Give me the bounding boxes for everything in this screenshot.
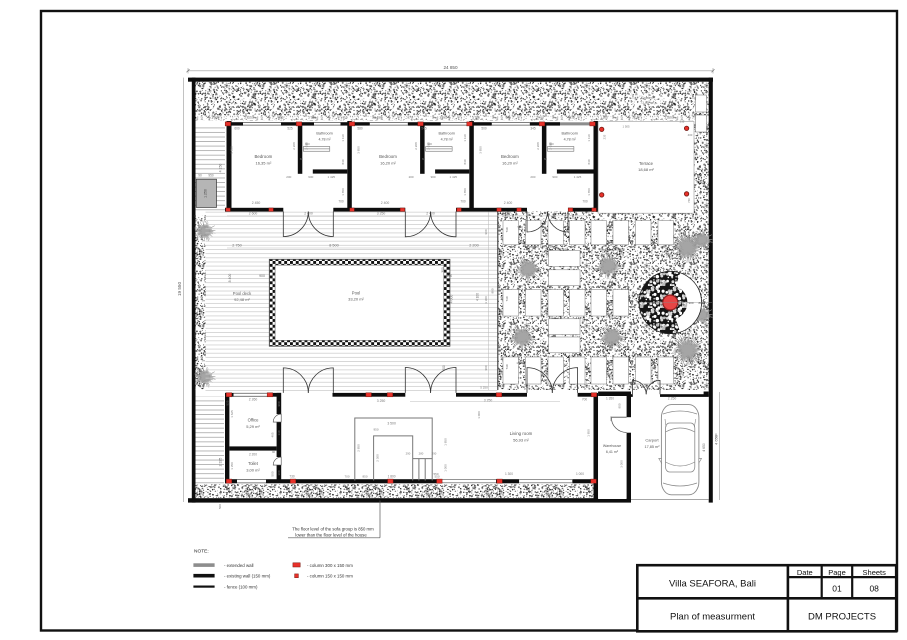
svg-text:92,48 m²: 92,48 m²	[234, 297, 250, 302]
svg-text:500: 500	[218, 504, 222, 509]
svg-text:200: 200	[409, 175, 414, 179]
svg-text:4 650: 4 650	[702, 443, 706, 452]
svg-text:DM PROJECTS: DM PROJECTS	[808, 612, 876, 623]
svg-text:2 750: 2 750	[232, 243, 242, 247]
svg-text:550: 550	[433, 472, 438, 476]
svg-text:3 850: 3 850	[356, 146, 360, 154]
svg-text:3 250: 3 250	[377, 212, 386, 216]
svg-text:- column 150 x 150 mm: - column 150 x 150 mm	[307, 574, 353, 579]
svg-text:545: 545	[421, 127, 427, 131]
svg-text:Villa SEAFORA, Bali: Villa SEAFORA, Bali	[669, 579, 756, 590]
svg-text:840: 840	[341, 159, 345, 164]
svg-text:280: 280	[419, 451, 424, 455]
svg-text:4 100: 4 100	[476, 293, 480, 301]
svg-text:- existing wall (150 mm): - existing wall (150 mm)	[224, 574, 271, 579]
svg-text:1 350: 1 350	[230, 462, 234, 470]
svg-text:16,20 m²: 16,20 m²	[502, 161, 518, 166]
svg-text:01: 01	[832, 584, 842, 594]
svg-text:60: 60	[300, 157, 304, 161]
svg-text:Bedroom: Bedroom	[254, 154, 272, 159]
svg-text:- fence (100 mm): - fence (100 mm)	[224, 585, 258, 590]
svg-text:1 350: 1 350	[664, 116, 672, 120]
svg-text:1 350: 1 350	[606, 396, 614, 400]
svg-text:4,78 m²: 4,78 m²	[441, 138, 454, 142]
svg-text:60: 60	[422, 157, 426, 161]
svg-text:700: 700	[582, 398, 588, 402]
svg-text:905: 905	[505, 116, 510, 120]
svg-text:1 110: 1 110	[341, 134, 345, 142]
svg-text:1 300: 1 300	[505, 472, 513, 476]
svg-text:- column 300 x 150 mm: - column 300 x 150 mm	[307, 563, 353, 568]
svg-text:1 100: 1 100	[516, 361, 524, 365]
svg-text:400: 400	[688, 133, 693, 137]
svg-text:Plant pot 130 x 130: Plant pot 130 x 130	[527, 245, 553, 249]
svg-text:730: 730	[505, 364, 509, 369]
svg-text:300: 300	[277, 470, 281, 475]
svg-text:100: 100	[447, 274, 453, 278]
svg-text:905: 905	[278, 116, 283, 120]
svg-text:1 295: 1 295	[439, 116, 447, 120]
svg-text:900: 900	[688, 301, 693, 305]
svg-text:1 000: 1 000	[443, 464, 447, 472]
svg-text:235: 235	[603, 134, 607, 139]
svg-text:250: 250	[660, 245, 665, 249]
svg-text:1 650: 1 650	[587, 188, 591, 196]
svg-text:1 000: 1 000	[576, 472, 584, 476]
svg-text:500: 500	[481, 127, 487, 131]
svg-text:3 300: 3 300	[484, 296, 488, 304]
svg-text:24 850: 24 850	[443, 65, 457, 70]
svg-text:700: 700	[582, 200, 588, 204]
svg-text:1 800: 1 800	[388, 474, 396, 478]
svg-text:5,29 m²: 5,29 m²	[246, 424, 260, 429]
svg-text:600: 600	[234, 127, 240, 131]
svg-text:900: 900	[484, 229, 488, 234]
svg-text:910: 910	[633, 116, 638, 120]
svg-text:1 505: 1 505	[600, 116, 608, 120]
svg-text:900: 900	[491, 288, 495, 293]
svg-text:700: 700	[582, 252, 586, 258]
svg-text:1 650: 1 650	[341, 188, 345, 196]
svg-text:2 208: 2 208	[292, 142, 296, 150]
svg-text:700: 700	[344, 474, 349, 478]
svg-text:- extended wall: - extended wall	[224, 563, 254, 568]
svg-text:4 150: 4 150	[219, 164, 223, 173]
svg-text:4,78 m²: 4,78 m²	[564, 138, 577, 142]
svg-text:2 208: 2 208	[536, 142, 540, 150]
svg-text:950: 950	[208, 174, 214, 178]
svg-text:19 550: 19 550	[177, 282, 182, 296]
svg-text:16,35 m²: 16,35 m²	[256, 161, 272, 166]
svg-text:300: 300	[441, 267, 445, 273]
svg-text:290: 290	[432, 451, 437, 455]
svg-text:2 260: 2 260	[249, 398, 258, 402]
svg-text:Bathroom: Bathroom	[561, 132, 577, 136]
svg-text:18,68 m²: 18,68 m²	[638, 167, 654, 172]
svg-text:465: 465	[271, 432, 275, 437]
svg-text:2 600: 2 600	[249, 212, 258, 216]
svg-text:700: 700	[338, 200, 344, 204]
svg-text:500: 500	[271, 471, 275, 476]
svg-text:900: 900	[517, 225, 522, 229]
svg-text:900: 900	[277, 401, 281, 406]
svg-text:1 000: 1 000	[477, 411, 481, 419]
svg-text:900: 900	[484, 365, 488, 370]
svg-text:130: 130	[277, 430, 281, 435]
svg-text:3 250: 3 250	[377, 399, 386, 403]
svg-text:Bedroom: Bedroom	[501, 154, 519, 159]
svg-text:290: 290	[406, 451, 411, 455]
svg-text:1 110: 1 110	[463, 134, 467, 142]
svg-text:3,00 m²: 3,00 m²	[246, 468, 260, 473]
svg-text:840: 840	[587, 159, 591, 164]
svg-text:90: 90	[198, 174, 202, 178]
svg-text:Terrace: Terrace	[639, 161, 654, 166]
svg-text:900: 900	[517, 284, 522, 288]
svg-text:Living room: Living room	[510, 431, 533, 436]
svg-text:850: 850	[362, 474, 367, 478]
svg-text:4,78 m²: 4,78 m²	[319, 138, 332, 142]
svg-text:2 030: 2 030	[427, 142, 431, 150]
svg-text:3 850: 3 850	[230, 146, 234, 154]
svg-text:73,03 m²: 73,03 m²	[640, 101, 654, 105]
svg-text:870: 870	[407, 116, 412, 120]
svg-text:1 850: 1 850	[587, 429, 591, 437]
svg-text:910: 910	[342, 116, 347, 120]
svg-text:2 300: 2 300	[375, 454, 379, 462]
svg-text:8 400: 8 400	[228, 274, 232, 283]
svg-text:33,20 m²: 33,20 m²	[348, 297, 364, 302]
svg-text:2 200: 2 200	[469, 243, 479, 247]
svg-text:700: 700	[460, 200, 466, 204]
svg-text:730: 730	[505, 296, 509, 301]
svg-text:56,93 m²: 56,93 m²	[513, 438, 529, 443]
svg-text:60: 60	[544, 157, 548, 161]
svg-text:1 425: 1 425	[328, 175, 336, 179]
svg-text:1 350: 1 350	[472, 116, 480, 120]
svg-text:2 625: 2 625	[244, 116, 252, 120]
svg-text:1 505: 1 505	[623, 124, 630, 128]
svg-text:8 500: 8 500	[329, 243, 339, 247]
svg-text:Plan of measurment: Plan of measurment	[670, 612, 755, 623]
svg-text:6,41 m²: 6,41 m²	[606, 450, 619, 454]
svg-text:1 650: 1 650	[560, 248, 569, 252]
svg-text:Warehouse: Warehouse	[603, 444, 621, 448]
svg-text:900: 900	[259, 274, 265, 278]
svg-text:2 325: 2 325	[219, 458, 223, 467]
svg-text:580: 580	[357, 127, 363, 131]
svg-text:1 425: 1 425	[574, 175, 582, 179]
svg-text:2 450: 2 450	[536, 116, 544, 120]
svg-text:3 000: 3 000	[620, 460, 624, 468]
svg-text:730: 730	[289, 475, 295, 479]
svg-text:Page: Page	[828, 568, 846, 577]
svg-text:235: 235	[680, 120, 685, 124]
svg-text:1 110: 1 110	[587, 134, 591, 142]
svg-text:1 625: 1 625	[230, 410, 234, 418]
svg-text:900: 900	[431, 175, 436, 179]
svg-text:lower than the floor level of: lower than the floor level of the house	[295, 533, 367, 538]
svg-text:90: 90	[272, 450, 276, 454]
svg-text:3 250: 3 250	[502, 212, 511, 216]
svg-text:700: 700	[582, 317, 586, 323]
svg-text:Pool deck: Pool deck	[233, 291, 252, 296]
svg-text:200: 200	[530, 175, 535, 179]
svg-text:2 030: 2 030	[548, 142, 552, 150]
svg-text:Plant pot 150 x 150: Plant pot 150 x 150	[599, 248, 625, 252]
svg-text:1.250: 1.250	[204, 189, 208, 198]
svg-text:1 850: 1 850	[443, 438, 447, 446]
svg-text:840: 840	[463, 159, 467, 164]
svg-text:1 425: 1 425	[450, 175, 458, 179]
svg-text:525: 525	[287, 127, 293, 131]
svg-text:2 530: 2 530	[374, 116, 382, 120]
svg-text:2 208: 2 208	[414, 142, 418, 150]
svg-text:300: 300	[714, 433, 718, 438]
svg-text:Carport: Carport	[645, 438, 659, 443]
svg-text:NOTE:: NOTE:	[194, 549, 209, 555]
svg-text:2 980: 2 980	[308, 116, 316, 120]
svg-text:1 900: 1 900	[211, 116, 219, 120]
svg-text:2 200: 2 200	[249, 452, 257, 456]
svg-text:2 030: 2 030	[304, 142, 308, 150]
svg-text:900: 900	[609, 416, 613, 421]
svg-text:Sheets: Sheets	[863, 568, 887, 577]
svg-text:900: 900	[618, 403, 622, 408]
svg-text:525: 525	[226, 400, 230, 405]
svg-text:08: 08	[869, 584, 879, 594]
svg-text:345: 345	[530, 127, 536, 131]
svg-text:Bathroom: Bathroom	[316, 132, 332, 136]
svg-text:Date: Date	[797, 568, 813, 577]
svg-text:The floor level of the sofa g: The floor level of the sofa group is 850…	[292, 527, 374, 532]
svg-text:Pool: Pool	[352, 291, 360, 296]
svg-text:870: 870	[569, 116, 574, 120]
svg-text:5 250: 5 250	[480, 386, 488, 390]
svg-text:Toilet: Toilet	[248, 461, 259, 466]
svg-text:2 450: 2 450	[252, 201, 261, 205]
svg-text:950: 950	[373, 428, 378, 432]
svg-text:2 400: 2 400	[504, 201, 513, 205]
svg-text:Office: Office	[248, 418, 260, 423]
svg-text:16,20 m²: 16,20 m²	[380, 161, 396, 166]
svg-text:2 850: 2 850	[357, 444, 361, 452]
svg-text:Bedroom: Bedroom	[379, 154, 397, 159]
svg-text:2 400: 2 400	[381, 201, 390, 205]
svg-text:730: 730	[505, 227, 509, 232]
svg-text:2 250: 2 250	[668, 396, 677, 400]
svg-text:3 850: 3 850	[478, 146, 482, 154]
svg-text:4 000: 4 000	[450, 295, 454, 304]
svg-text:800: 800	[698, 301, 703, 305]
svg-text:900: 900	[308, 175, 313, 179]
svg-text:Bathroom: Bathroom	[438, 132, 454, 136]
svg-text:900: 900	[552, 175, 557, 179]
svg-text:3 500: 3 500	[387, 422, 396, 426]
svg-text:760: 760	[687, 198, 691, 203]
svg-text:17,85 m²: 17,85 m²	[645, 445, 661, 449]
svg-text:1 650: 1 650	[463, 188, 467, 196]
svg-text:Garden: Garden	[641, 96, 653, 100]
svg-text:200: 200	[286, 175, 291, 179]
